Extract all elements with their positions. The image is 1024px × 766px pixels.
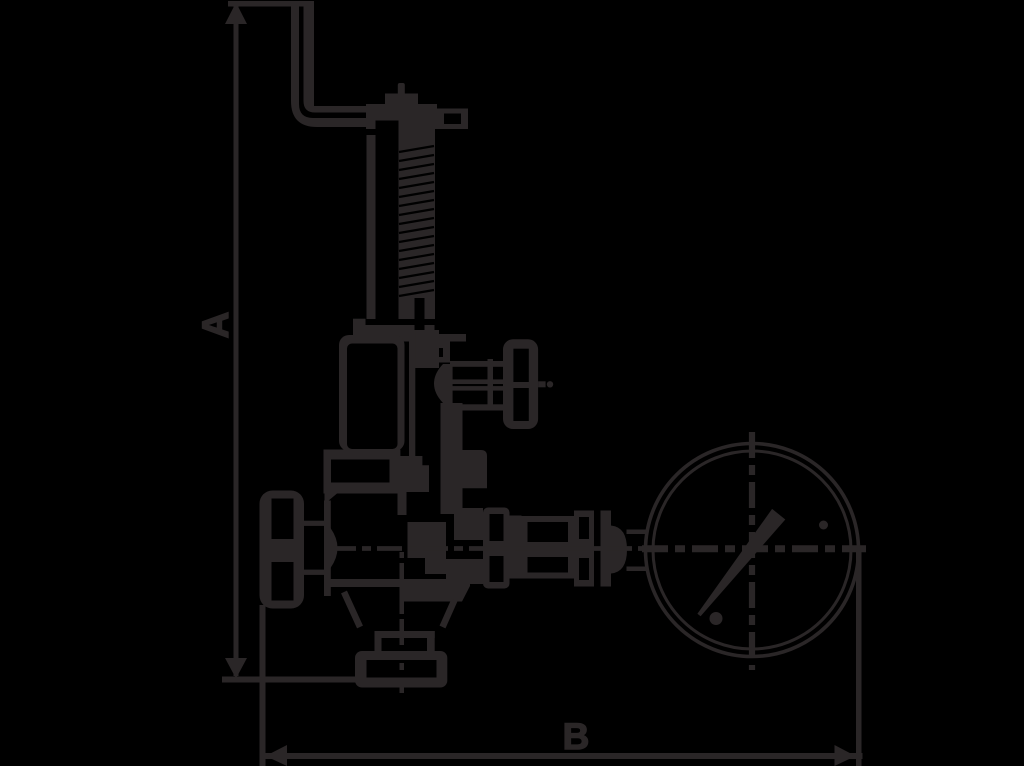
svg-text:A: A <box>195 312 236 339</box>
svg-text:B: B <box>563 716 590 757</box>
